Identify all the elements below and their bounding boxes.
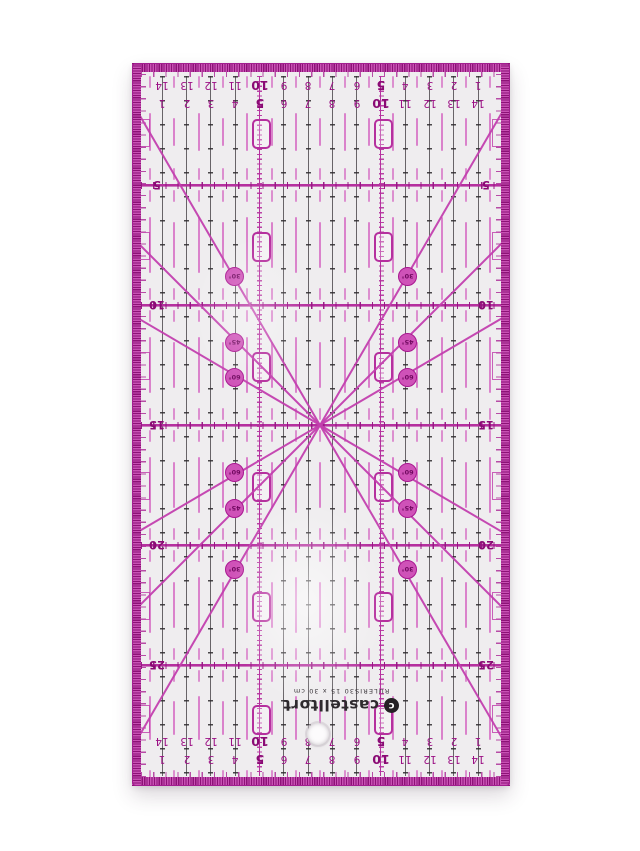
ruler-frame-top bbox=[132, 63, 510, 72]
brand-name: castelltort bbox=[283, 697, 379, 715]
quilting-ruler: 30°45°60°30°45°60°60°45°30°60°45°30° 141… bbox=[132, 63, 510, 786]
ruler-frame-left bbox=[132, 63, 141, 786]
product-photo-canvas: { "photo": { "background": "#ffffff", "s… bbox=[0, 0, 640, 851]
ruler-frame-right bbox=[501, 63, 510, 786]
brand-spec: RULERIS30 15 x 30 cm bbox=[293, 688, 389, 696]
hanging-hole bbox=[307, 723, 329, 745]
castelltort-logo-icon: c bbox=[384, 698, 399, 713]
ruler-frame-bottom bbox=[132, 777, 510, 786]
brand-block: c castelltort RULERIS30 15 x 30 cm bbox=[246, 684, 436, 718]
